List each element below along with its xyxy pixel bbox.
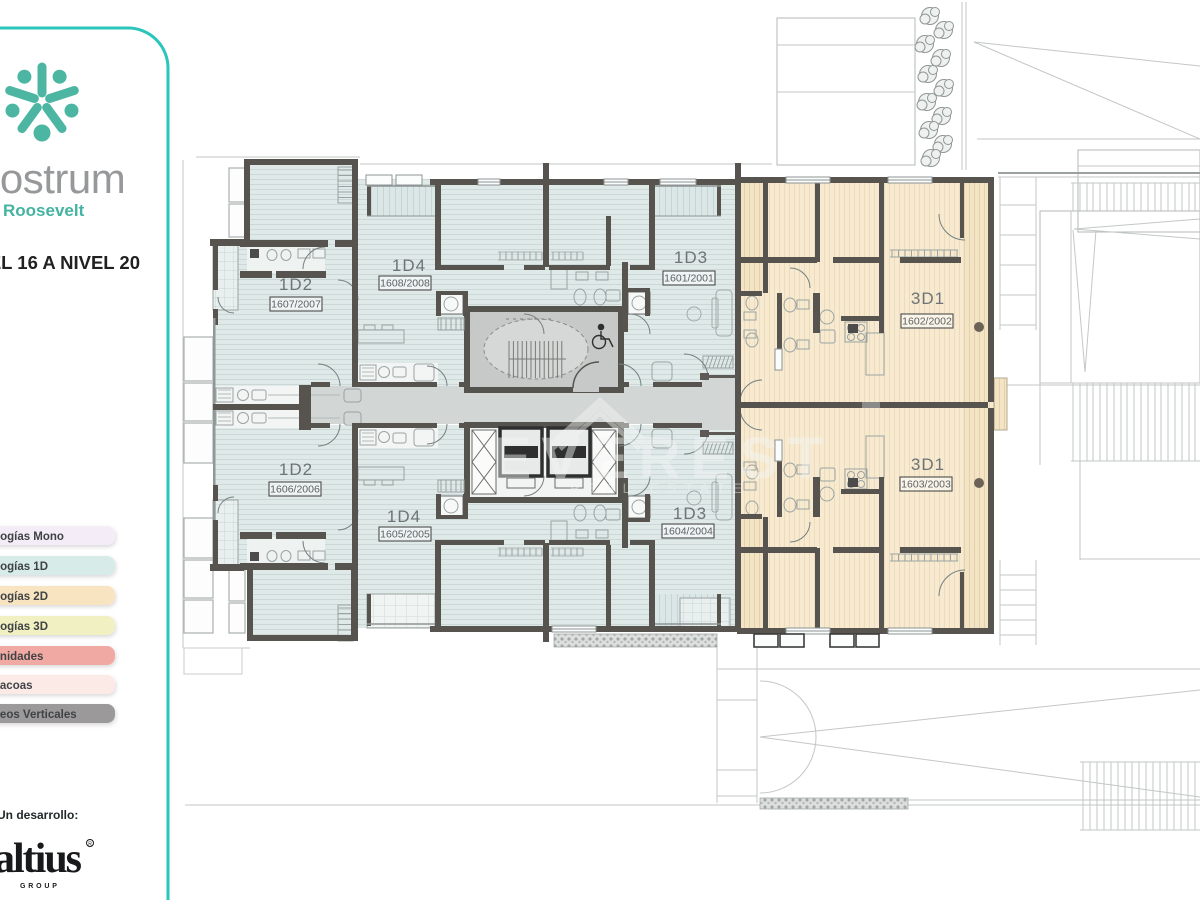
svg-text:3D1: 3D1 bbox=[911, 455, 945, 474]
svg-text:NIVEL 16 A NIVEL 20: NIVEL 16 A NIVEL 20 bbox=[0, 252, 140, 273]
svg-text:1D4: 1D4 bbox=[387, 507, 421, 526]
svg-text:Tipologías 1D: Tipologías 1D bbox=[0, 561, 48, 573]
svg-text:Un desarrollo:: Un desarrollo: bbox=[0, 808, 78, 822]
svg-text:1D3: 1D3 bbox=[673, 504, 707, 523]
svg-text:Nostrum: Nostrum bbox=[0, 155, 125, 202]
svg-text:R: R bbox=[88, 842, 92, 848]
svg-text:1602/2002: 1602/2002 bbox=[902, 316, 952, 328]
svg-text:altius: altius bbox=[0, 836, 82, 882]
svg-text:1603/2003: 1603/2003 bbox=[901, 479, 951, 491]
svg-text:3D1: 3D1 bbox=[911, 289, 945, 308]
svg-text:Núcleos Verticales: Núcleos Verticales bbox=[0, 709, 77, 721]
svg-text:1D2: 1D2 bbox=[279, 275, 313, 294]
svg-text:Amenidades: Amenidades bbox=[0, 651, 43, 663]
svg-text:REAL ESTATE: REAL ESTATE bbox=[570, 480, 750, 496]
svg-text:GROUP: GROUP bbox=[20, 883, 60, 890]
svg-text:1D3: 1D3 bbox=[674, 248, 708, 267]
svg-text:Tipologías 3D: Tipologías 3D bbox=[0, 621, 48, 633]
svg-text:Tipologías 2D: Tipologías 2D bbox=[0, 591, 48, 603]
svg-text:1D2: 1D2 bbox=[279, 460, 313, 479]
svg-text:1607/2007: 1607/2007 bbox=[271, 299, 321, 311]
svg-text:1601/2001: 1601/2001 bbox=[664, 273, 714, 285]
svg-text:1604/2004: 1604/2004 bbox=[663, 526, 713, 538]
svg-text:Barbacoas: Barbacoas bbox=[0, 680, 33, 692]
svg-text:1608/2008: 1608/2008 bbox=[380, 278, 430, 290]
svg-text:Tipologías Mono: Tipologías Mono bbox=[0, 531, 64, 543]
svg-text:1606/2006: 1606/2006 bbox=[270, 484, 320, 496]
svg-text:1605/2005: 1605/2005 bbox=[380, 529, 430, 541]
svg-text:1D4: 1D4 bbox=[392, 256, 426, 275]
svg-text:Roosevelt: Roosevelt bbox=[3, 201, 85, 220]
